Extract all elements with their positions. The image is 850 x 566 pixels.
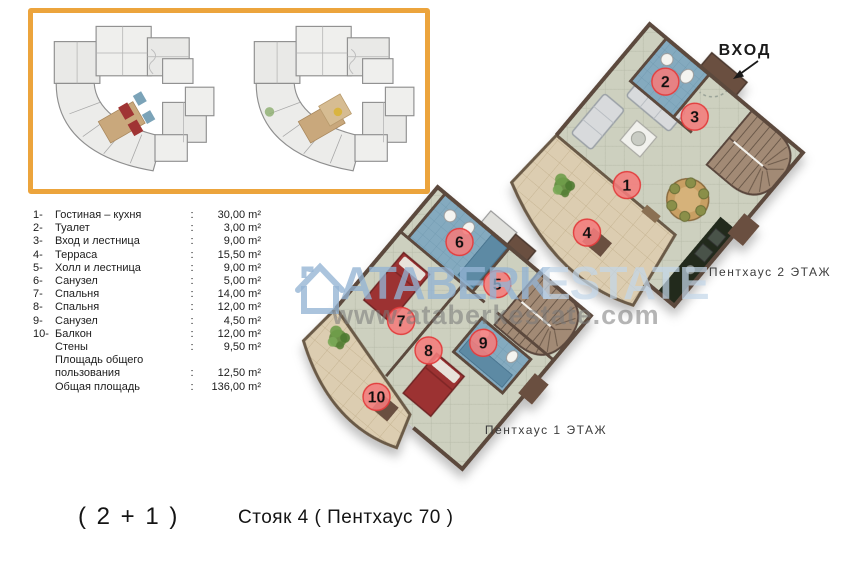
svg-text:5: 5 [493,277,502,294]
room-marker-9: 9 [470,329,497,356]
svg-text:7: 7 [397,313,406,330]
svg-text:1: 1 [622,178,631,195]
floorplan-page: 1-Гостиная – кухня:30,00 m² 2-Туалет:3,0… [0,0,850,566]
unit-type-label: ( 2 + 1 ) [78,503,179,531]
svg-text:4: 4 [583,225,592,242]
svg-text:3: 3 [690,109,699,126]
room-marker-8: 8 [415,337,442,364]
svg-text:2: 2 [661,74,670,91]
floor1-caption: Пентхаус 1 ЭТАЖ [485,423,607,437]
svg-text:10: 10 [368,389,386,406]
riser-label: Стояк 4 ( Пентхаус 70 ) [238,507,453,529]
svg-text:9: 9 [479,335,488,352]
room-marker-1: 1 [613,172,640,199]
floor2-caption: Пентхаус 2 ЭТАЖ [709,265,831,279]
room-marker-6: 6 [446,228,473,255]
room-marker-4: 4 [573,219,600,246]
entrance-arrow [733,61,758,79]
room-marker-3: 3 [681,103,708,130]
floorplans-canvas: 1 2 3 4 ВХОД [0,0,850,566]
entrance-label: ВХОД [719,42,772,59]
room-marker-7: 7 [388,307,415,334]
svg-text:6: 6 [455,234,464,251]
room-marker-5: 5 [484,271,511,298]
room-marker-10: 10 [363,383,390,410]
room-marker-2: 2 [652,68,679,95]
svg-text:8: 8 [424,343,433,360]
